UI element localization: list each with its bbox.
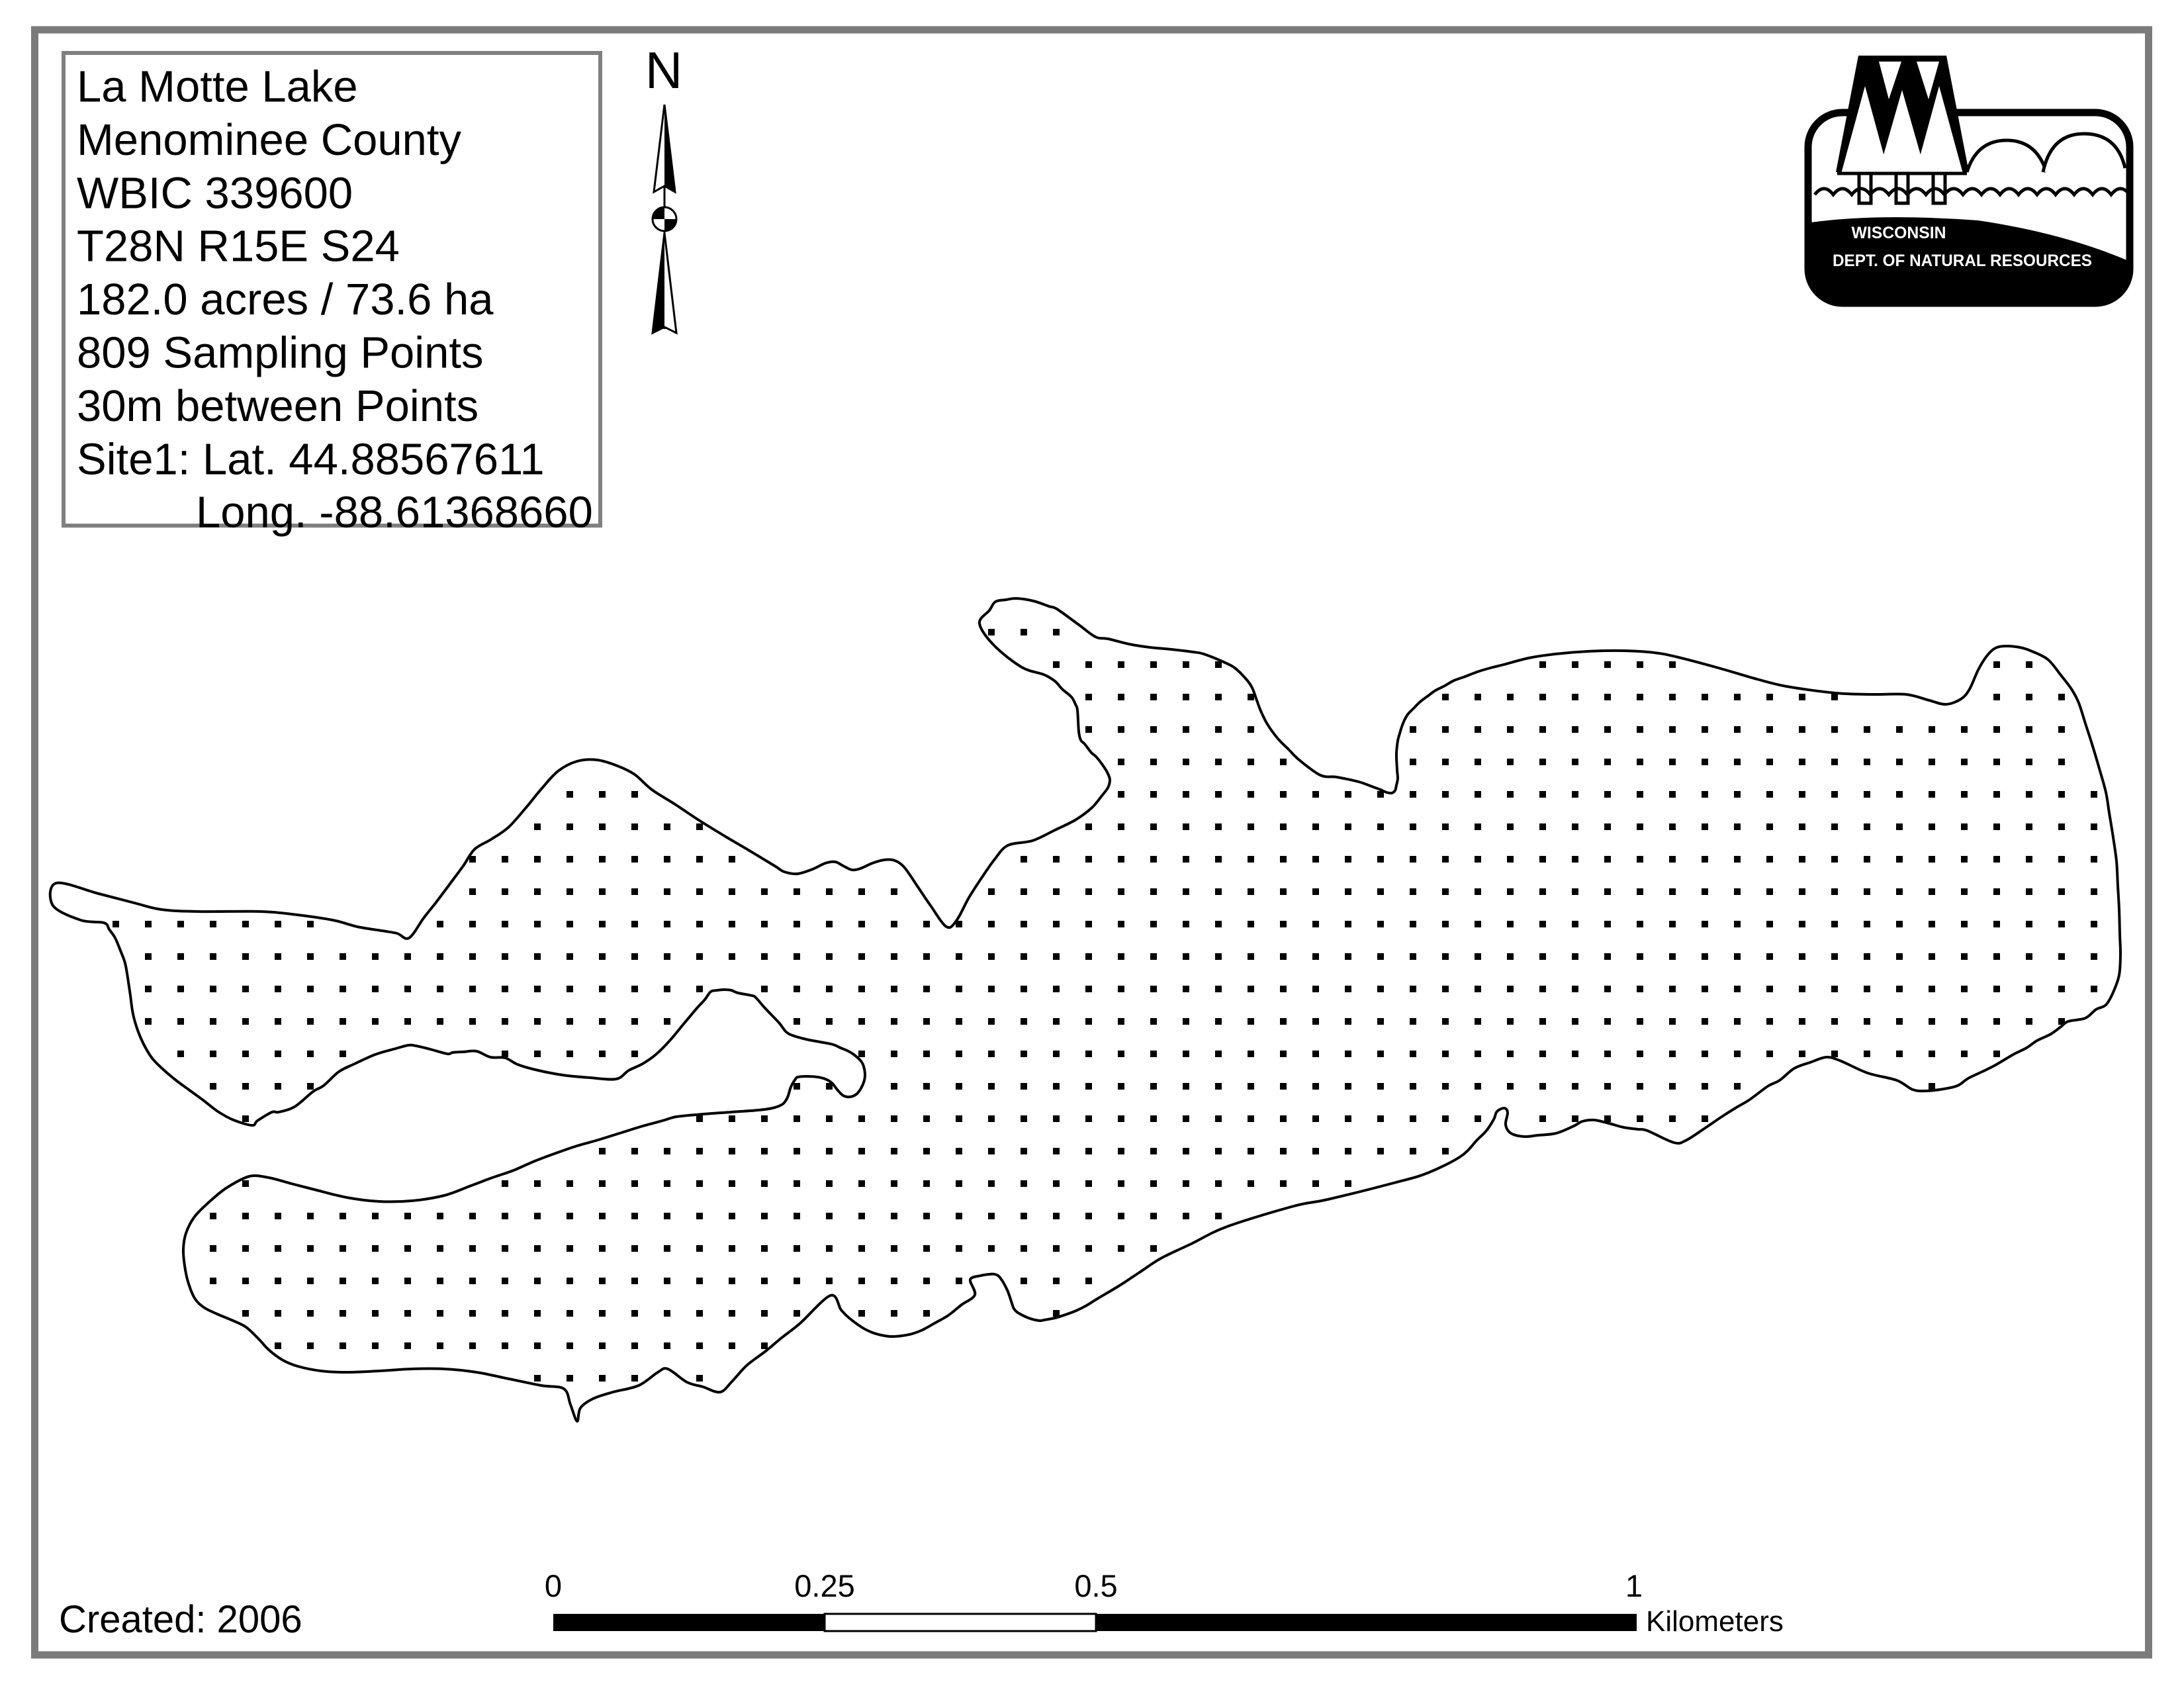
svg-text:Site1: Lat. 44.88567611: Site1: Lat. 44.88567611: [77, 434, 545, 484]
svg-text:30m between Points: 30m between Points: [77, 381, 478, 431]
svg-text:Created: 2006: Created: 2006: [59, 1598, 302, 1641]
svg-text:WISCONSIN: WISCONSIN: [1852, 224, 1946, 242]
svg-text:182.0 acres / 73.6 ha: 182.0 acres / 73.6 ha: [77, 275, 494, 324]
svg-text:Menominee County: Menominee County: [77, 115, 461, 165]
svg-text:DEPT. OF NATURAL RESOURCES: DEPT. OF NATURAL RESOURCES: [1833, 252, 2092, 270]
svg-text:WBIC 339600: WBIC 339600: [77, 168, 353, 218]
svg-text:T28N R15E S24: T28N R15E S24: [77, 222, 400, 271]
svg-text:809 Sampling Points: 809 Sampling Points: [77, 328, 484, 378]
svg-text:0.5: 0.5: [1074, 1568, 1117, 1603]
svg-text:0: 0: [545, 1568, 562, 1603]
svg-text:1: 1: [1625, 1568, 1643, 1603]
svg-text:0.25: 0.25: [794, 1568, 854, 1603]
svg-text:Long. -88.61368660: Long. -88.61368660: [196, 488, 593, 538]
svg-text:Kilometers: Kilometers: [1646, 1605, 1784, 1638]
svg-text:N: N: [645, 41, 682, 99]
svg-text:La Motte Lake: La Motte Lake: [77, 62, 358, 112]
